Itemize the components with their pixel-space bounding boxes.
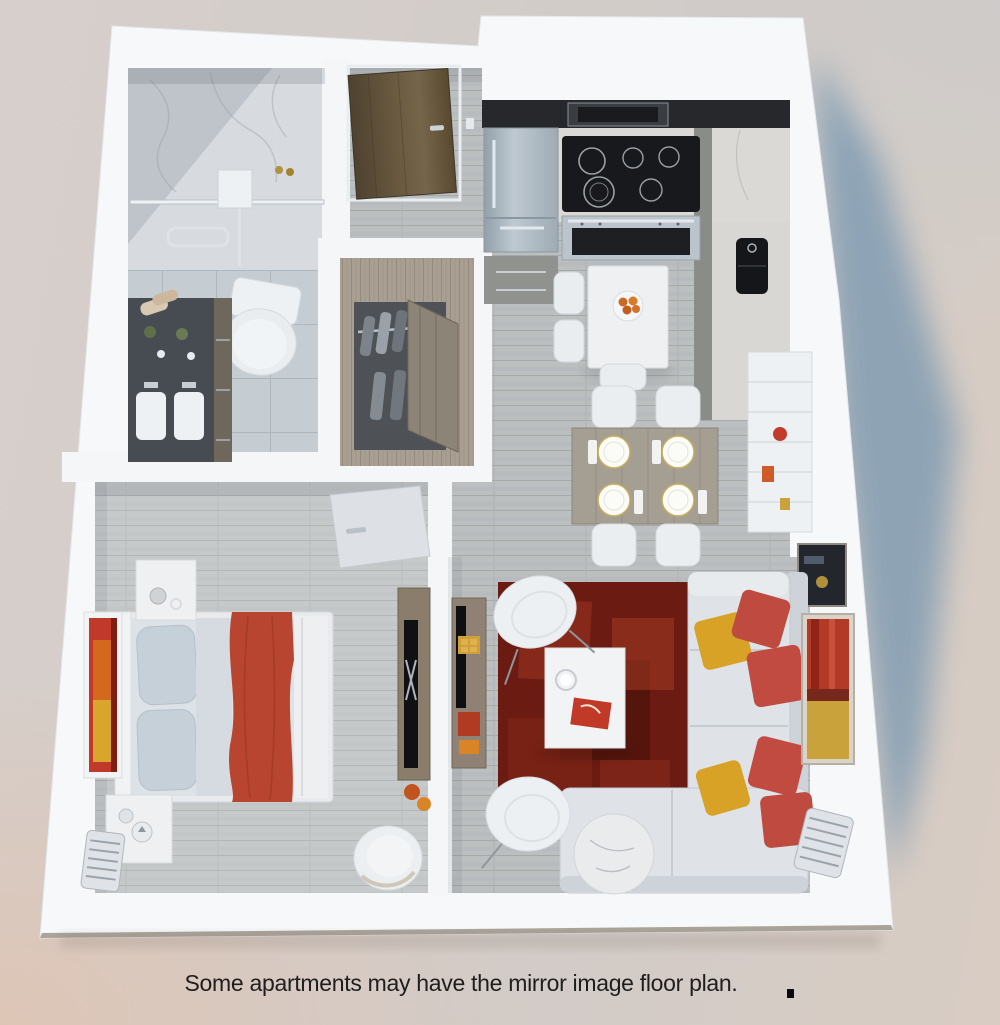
base-cabinets (484, 256, 558, 304)
dining-chair (656, 524, 700, 566)
oven (562, 216, 700, 260)
faucet-left (144, 382, 158, 388)
nightstand-top (136, 560, 196, 620)
orange-fruit (619, 298, 628, 307)
vanity-jar (157, 350, 165, 358)
closet-sliding-door (408, 300, 458, 452)
console-book-orange (459, 740, 479, 754)
orange-vase (404, 784, 420, 800)
radiator-bedroom (80, 830, 125, 892)
orange-fruit (623, 306, 632, 315)
vanity-plant (176, 328, 188, 340)
foundation-shadow (60, 934, 880, 948)
tv-screen (456, 606, 466, 708)
media-console (452, 598, 486, 768)
floorplan-render: Some apartments may have the mirror imag… (0, 0, 1000, 1025)
shampoo-bottle (275, 166, 283, 174)
shower-glass-door-edge (238, 204, 241, 266)
shelf-decor-yellow (780, 498, 790, 510)
floorplan-canvas (0, 0, 1000, 1025)
orange-fruit (632, 305, 640, 313)
dining-chair (592, 386, 636, 428)
bed-pillow (137, 709, 198, 791)
cooktop (562, 136, 700, 212)
pillow-red (746, 644, 809, 709)
light-switch (466, 118, 474, 129)
bed-pillow (136, 625, 198, 706)
hall-floor-patch (452, 482, 482, 562)
shower-control-panel (218, 170, 252, 208)
red-throw-blanket (229, 612, 294, 802)
shelf-decor-orange (762, 466, 774, 482)
kitchen-chair (554, 320, 584, 362)
walk-in-closet (340, 258, 474, 466)
kitchen-sink (736, 238, 768, 294)
microwave-window (578, 107, 658, 122)
sink-right (174, 392, 204, 440)
coffee-table (537, 648, 633, 760)
kitchen-chair (554, 272, 584, 314)
mug (150, 588, 166, 604)
bed (115, 612, 333, 802)
orange-fruit (629, 297, 638, 306)
vanity-jar (187, 352, 195, 360)
marble-side-table (574, 814, 654, 894)
papasan-chair (354, 826, 422, 890)
dining-chair (656, 386, 700, 428)
shampoo-bottle (286, 168, 294, 176)
tv-console-bedroom (398, 588, 431, 811)
vanity (128, 288, 232, 462)
wall-art-red-yellow (802, 614, 854, 764)
faucet-right (182, 382, 196, 388)
caption-text: Some apartments may have the mirror imag… (0, 970, 922, 997)
orange-vase (417, 797, 431, 811)
refrigerator (484, 128, 558, 252)
bedroom-door (330, 486, 430, 568)
decor-bowl (119, 809, 133, 823)
bedroom-wall-art (84, 612, 122, 778)
sink-left (136, 392, 166, 440)
shelf-decor-red (773, 427, 787, 441)
living-room (452, 564, 855, 894)
render-artifact-dot (787, 989, 794, 998)
console-book-red (458, 712, 480, 736)
dining-chair (592, 524, 636, 566)
duvet (294, 616, 328, 798)
entry-door-handle (430, 125, 444, 131)
shelf-unit (748, 352, 812, 532)
bedroom-tv (404, 620, 418, 768)
red-book (570, 697, 611, 729)
vanity-plant (144, 326, 156, 338)
